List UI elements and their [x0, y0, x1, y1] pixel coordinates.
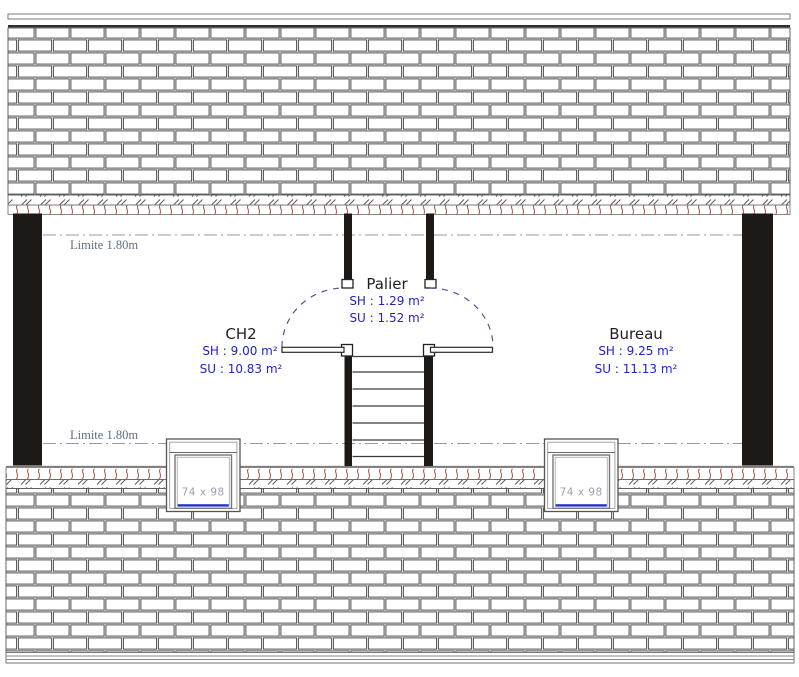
- room-sh-ch2: SH : 9.00 m²: [202, 344, 278, 358]
- stairwell: [345, 355, 434, 466]
- door-leaf-left: [282, 347, 344, 352]
- window-size-label-right: 74 x 98: [560, 487, 603, 499]
- ridge-edge-band: [8, 14, 790, 19]
- stair-wall-left: [345, 355, 353, 466]
- roof-bottom: [6, 466, 794, 663]
- stair-wall-right: [424, 355, 433, 466]
- palier-wall-right: [426, 214, 434, 280]
- door-swing-arc-right: [430, 288, 493, 347]
- palier-wall-left: [344, 214, 352, 280]
- window-sash-outer: [553, 455, 610, 508]
- roof-bottom-tiles: [6, 468, 794, 480]
- floor-plan-page: 74 x 98 74 x 98 Limite 1.80m Limite 1.80…: [0, 0, 799, 677]
- room-label-ch2: CH2: [225, 325, 256, 343]
- stair-treads: [353, 357, 425, 457]
- floor-plan-drawing: 74 x 98 74 x 98 Limite 1.80m Limite 1.80…: [0, 0, 799, 677]
- room-sh-bureau: SH : 9.25 m²: [598, 344, 674, 358]
- roof-window-right: 74 x 98: [545, 439, 619, 512]
- room-label-palier: Palier: [366, 275, 408, 293]
- roof-top-tiles: [8, 205, 790, 215]
- labels: Limite 1.80m Limite 1.80m CH2 SH : 9.00 …: [70, 238, 678, 442]
- door-swing-arc-left: [282, 288, 344, 347]
- room-su-ch2: SU : 10.83 m²: [200, 362, 283, 376]
- window-sash-outer: [175, 455, 232, 508]
- roof-top: [8, 14, 790, 215]
- room-su-bureau: SU : 11.13 m²: [595, 362, 678, 376]
- room-sh-palier: SH : 1.29 m²: [349, 294, 425, 308]
- roof-window-left: 74 x 98: [167, 439, 241, 512]
- roof-bottom-bricks: [6, 489, 794, 653]
- wall-right: [742, 214, 773, 466]
- ridge-line: [8, 25, 790, 27]
- jamb-palier-left: [342, 280, 353, 289]
- window-size-label-left: 74 x 98: [182, 487, 225, 499]
- room-label-bureau: Bureau: [609, 325, 663, 343]
- room-su-palier: SU : 1.52 m²: [349, 311, 424, 325]
- window-sill-line: [178, 504, 229, 506]
- jamb-palier-right: [425, 280, 436, 289]
- limit-label-top: Limite 1.80m: [70, 238, 138, 252]
- roof-top-bricks: [8, 28, 790, 195]
- roof-top-battens: [8, 195, 790, 205]
- roof-bottom-battens: [6, 480, 794, 489]
- wall-left: [13, 214, 42, 466]
- door-leaf-right: [431, 347, 493, 352]
- window-sill-line: [556, 504, 607, 506]
- eaves-band: [6, 653, 794, 664]
- limit-label-bottom: Limite 1.80m: [70, 428, 138, 442]
